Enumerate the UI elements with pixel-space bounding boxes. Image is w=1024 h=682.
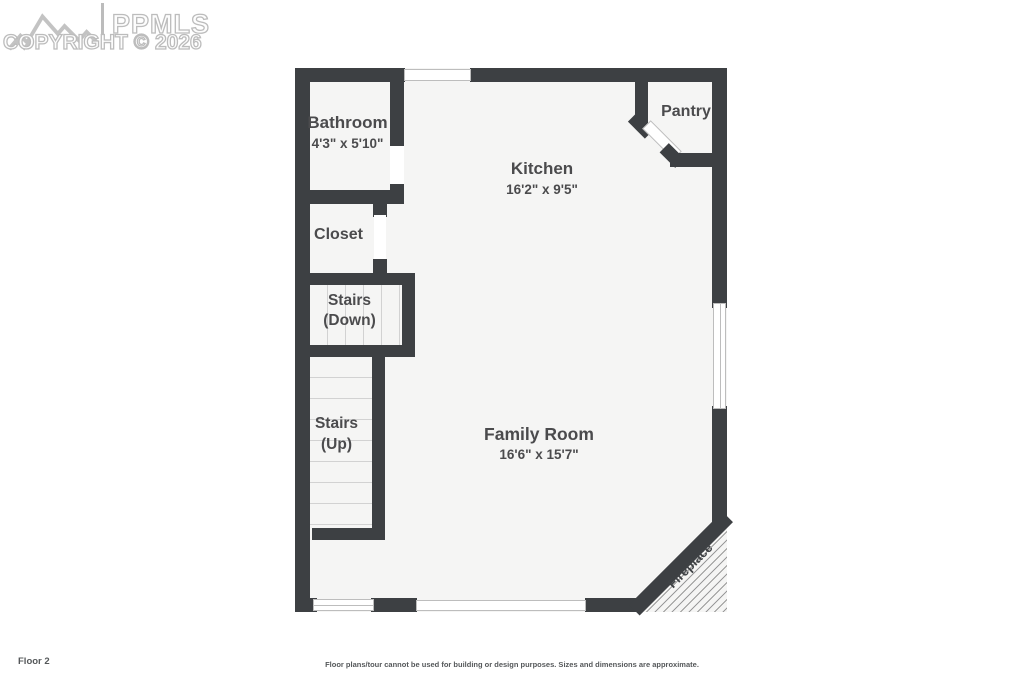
wall-top-left <box>295 68 405 82</box>
stairs-down-top-wall <box>310 273 415 285</box>
floor-plan-canvas: PPMLS COPYRIGHT © 2026 Fireplace Bathroo… <box>0 0 1024 682</box>
bottom-wall-slider <box>416 600 586 611</box>
stairs-down-label-line1: Stairs <box>302 292 397 310</box>
disclaimer-text: Floor plans/tour cannot be used for buil… <box>0 660 1024 669</box>
kitchen-dimensions: 16'2" x 9'5" <box>462 182 622 197</box>
closet-label: Closet <box>296 226 381 244</box>
stairs-up-label-line1: Stairs <box>289 415 384 433</box>
watermark-copyright: COPYRIGHT © 2026 <box>3 31 202 55</box>
wall-bottom-b <box>371 598 417 612</box>
pantry-label: Pantry <box>636 103 736 121</box>
bathroom-bottom-wall <box>310 190 404 204</box>
family-room-dimensions: 16'6" x 15'7" <box>439 447 639 462</box>
stairs-up-label-line2: (Up) <box>289 436 384 454</box>
bottom-wall-window <box>313 599 374 611</box>
bathroom-dimensions: 4'3" x 5'10" <box>295 136 400 151</box>
bathroom-door-opening <box>390 146 404 186</box>
wall-top-right <box>470 68 727 82</box>
top-wall-window <box>404 69 471 81</box>
bathroom-label: Bathroom <box>295 113 400 133</box>
pantry-bottom-wall <box>670 153 713 167</box>
right-wall-window <box>713 303 726 409</box>
stairs-down-label-line2: (Down) <box>302 312 397 330</box>
stairs-up-bottom-cap <box>312 528 385 540</box>
kitchen-label: Kitchen <box>462 159 622 179</box>
family-room-label: Family Room <box>439 424 639 445</box>
stairs-down-bottom-wall <box>310 345 415 357</box>
